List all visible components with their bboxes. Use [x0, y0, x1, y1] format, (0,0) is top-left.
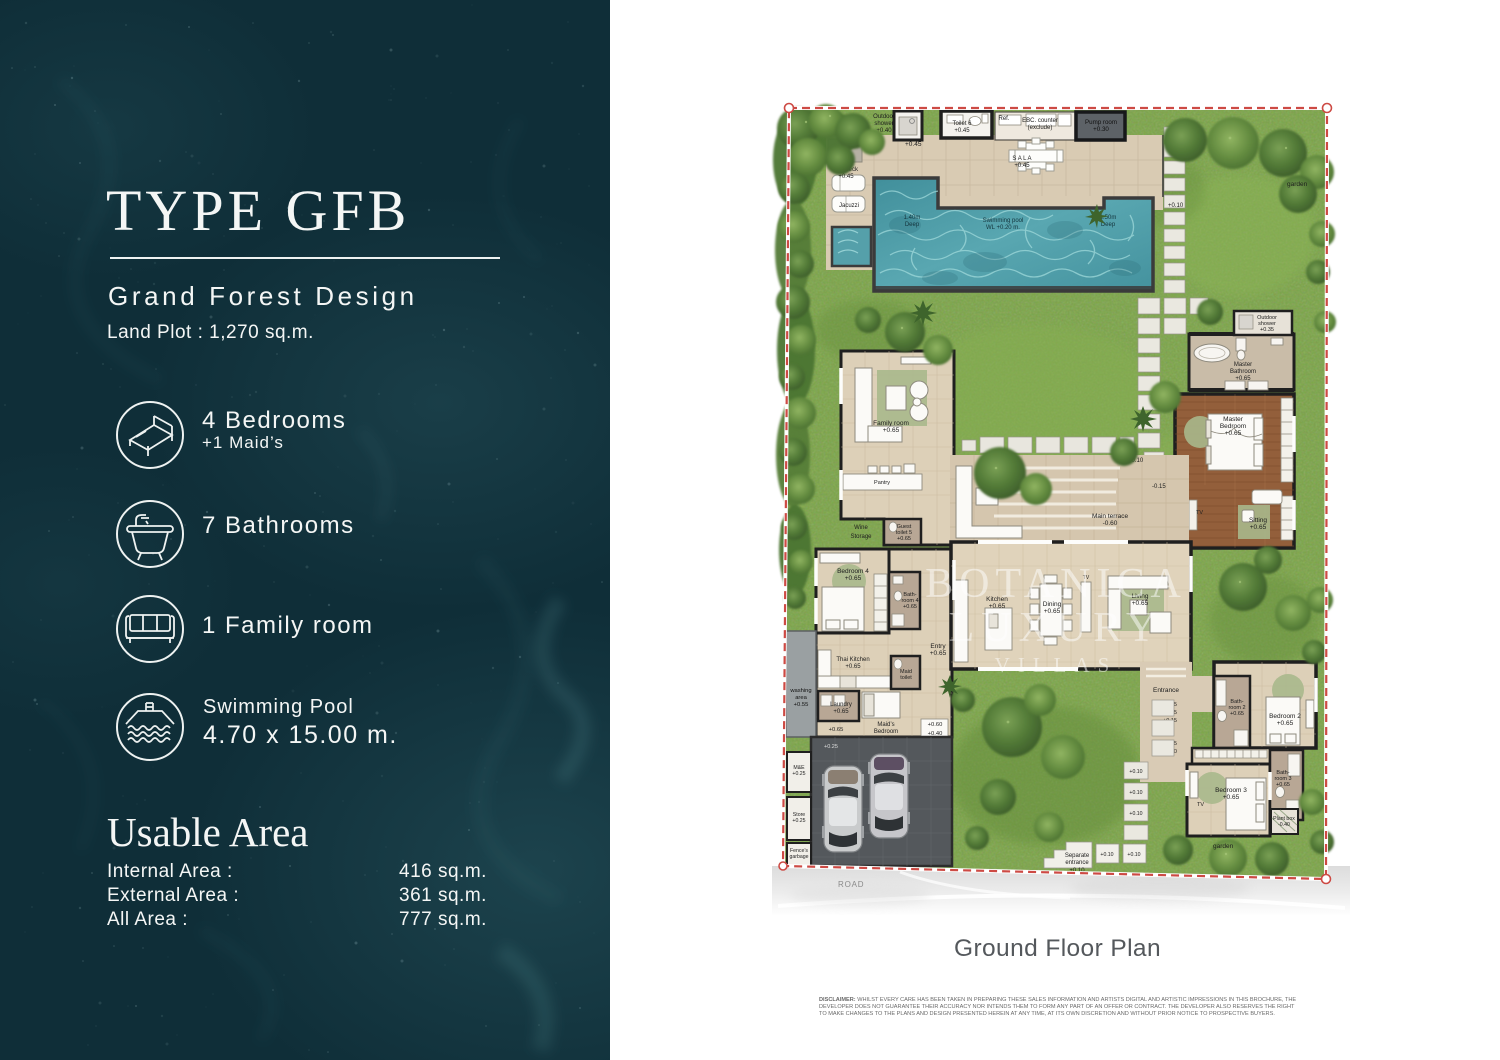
svg-text:Jacuzzi: Jacuzzi	[839, 203, 859, 209]
svg-text:ROAD: ROAD	[838, 880, 864, 889]
svg-text:+0.35: +0.35	[1260, 327, 1274, 333]
svg-text:shower: shower	[874, 121, 893, 127]
svg-text:+0.65: +0.65	[1250, 524, 1267, 531]
svg-text:Ref.: Ref.	[998, 116, 1009, 122]
svg-text:+0.65: +0.65	[845, 575, 862, 582]
svg-text:+0.60: +0.60	[928, 722, 943, 728]
svg-text:Sitting: Sitting	[1249, 517, 1267, 524]
svg-text:+0.10: +0.10	[1129, 790, 1142, 796]
svg-text:Swimming pool: Swimming pool	[983, 218, 1024, 224]
svg-text:+0.55: +0.55	[794, 702, 809, 708]
svg-text:Separate: Separate	[1065, 853, 1090, 859]
svg-text:Toilet 6: Toilet 6	[952, 121, 972, 127]
svg-text:Wine: Wine	[854, 525, 868, 531]
svg-text:+0.25: +0.25	[792, 771, 805, 777]
svg-text:+0.25: +0.25	[824, 744, 838, 750]
svg-text:Main terrace: Main terrace	[1092, 513, 1129, 520]
svg-text:TV: TV	[1196, 510, 1203, 516]
svg-text:area: area	[795, 695, 807, 701]
svg-text:Pump room: Pump room	[1085, 119, 1117, 126]
svg-text:+0.10: +0.10	[1127, 852, 1140, 858]
svg-text:+0.45: +0.45	[1014, 163, 1030, 169]
svg-text:-0.40: -0.40	[1278, 822, 1290, 828]
svg-text:Laundry: Laundry	[830, 702, 852, 708]
svg-text:garden: garden	[1213, 843, 1234, 850]
svg-text:LUXURY: LUXURY	[949, 605, 1164, 651]
svg-text:Bedroom: Bedroom	[874, 729, 898, 735]
svg-text:entrance: entrance	[1065, 860, 1089, 866]
svg-text:Pantry: Pantry	[874, 480, 890, 486]
svg-text:toilet: toilet	[900, 675, 912, 681]
svg-text:Master: Master	[1223, 416, 1244, 423]
svg-text:Bedroom: Bedroom	[1220, 423, 1246, 430]
svg-text:BOTANICA: BOTANICA	[925, 561, 1187, 607]
svg-text:VILLAS: VILLAS	[995, 653, 1118, 677]
svg-text:+0.65: +0.65	[1276, 782, 1290, 788]
svg-text:1.40m: 1.40m	[904, 215, 921, 221]
svg-text:Storage: Storage	[850, 534, 872, 540]
svg-text:+0.65: +0.65	[833, 709, 849, 715]
svg-text:-0.60: -0.60	[1103, 520, 1118, 527]
svg-text:+0.65: +0.65	[845, 664, 861, 670]
svg-text:+0.65: +0.65	[1223, 794, 1240, 801]
svg-text:TV: TV	[1197, 802, 1204, 808]
svg-text:Deep: Deep	[905, 222, 920, 228]
svg-text:+0.65: +0.65	[883, 427, 900, 434]
svg-text:+0.65: +0.65	[1225, 430, 1242, 437]
svg-text:+0.65: +0.65	[930, 650, 947, 657]
svg-text:+0.30: +0.30	[1093, 126, 1109, 133]
svg-text:Maid’s: Maid’s	[877, 722, 894, 728]
svg-text:+0.65: +0.65	[903, 604, 917, 610]
svg-text:Thai Kitchen: Thai Kitchen	[836, 657, 869, 663]
svg-text:+0.25: +0.25	[792, 818, 805, 824]
svg-text:+0.10: +0.10	[1168, 203, 1184, 209]
svg-text:S A L A: S A L A	[1012, 156, 1031, 162]
svg-text:garbage: garbage	[789, 854, 808, 860]
svg-text:Bedroom 3: Bedroom 3	[1215, 787, 1247, 794]
svg-text:garden: garden	[1287, 181, 1308, 188]
svg-text:+0.65: +0.65	[1230, 711, 1244, 717]
svg-text:Master: Master	[1234, 362, 1252, 368]
svg-text:Bedroom 2: Bedroom 2	[1269, 713, 1301, 720]
svg-text:(exclude): (exclude)	[1028, 125, 1053, 131]
svg-text:+0.65: +0.65	[829, 727, 844, 733]
svg-text:+0.10: +0.10	[1129, 769, 1142, 775]
svg-text:+0.65: +0.65	[897, 536, 911, 542]
svg-text:Outdoor: Outdoor	[873, 114, 895, 120]
svg-text:Entrance: Entrance	[1153, 687, 1179, 694]
svg-text:+0.10: +0.10	[1100, 852, 1113, 858]
svg-text:washing: washing	[789, 688, 811, 694]
svg-text:+0.45: +0.45	[905, 141, 922, 148]
svg-text:Bathroom: Bathroom	[1230, 369, 1256, 375]
svg-text:+0.65: +0.65	[1277, 720, 1294, 727]
svg-text:+0.65: +0.65	[1235, 376, 1251, 382]
svg-text:Bedroom 4: Bedroom 4	[837, 568, 869, 575]
svg-text:EBC. counter: EBC. counter	[1022, 118, 1058, 124]
svg-text:+0.45: +0.45	[954, 128, 970, 134]
svg-text:WL +0.20 m.: WL +0.20 m.	[986, 225, 1020, 231]
svg-text:-0.15: -0.15	[1152, 484, 1166, 490]
svg-text:+0.10: +0.10	[1129, 811, 1142, 817]
svg-text:Entry: Entry	[930, 643, 946, 650]
svg-text:Family room: Family room	[873, 420, 909, 427]
